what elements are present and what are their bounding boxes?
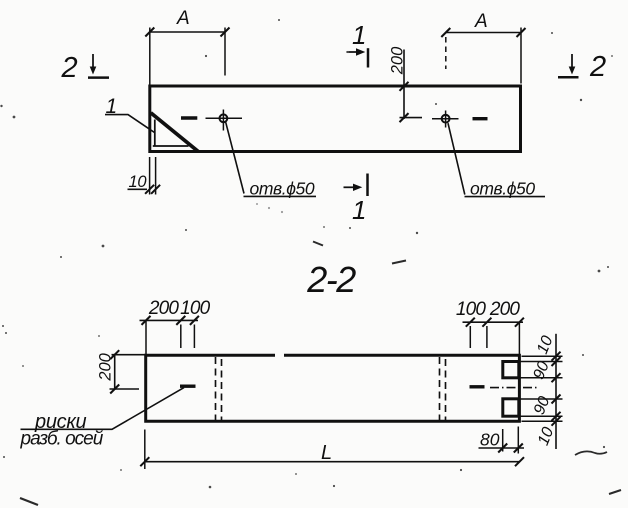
svg-text:разб. осей: разб. осей xyxy=(20,429,104,450)
svg-text:10: 10 xyxy=(129,173,148,191)
svg-text:200: 200 xyxy=(96,352,114,381)
svg-text:100: 100 xyxy=(456,299,487,320)
svg-text:2: 2 xyxy=(61,52,78,84)
svg-text:200: 200 xyxy=(389,46,407,75)
svg-text:отв.ϕ50: отв.ϕ50 xyxy=(250,178,315,198)
svg-text:1: 1 xyxy=(106,95,118,118)
svg-text:100: 100 xyxy=(180,298,211,319)
svg-text:A: A xyxy=(474,11,488,32)
svg-text:80: 80 xyxy=(480,430,500,450)
svg-text:200: 200 xyxy=(489,299,521,320)
svg-text:A: A xyxy=(176,8,190,29)
svg-text:2: 2 xyxy=(589,51,606,83)
svg-text:200: 200 xyxy=(148,298,180,319)
svg-text:1: 1 xyxy=(352,195,366,225)
svg-text:отв.ϕ50: отв.ϕ50 xyxy=(470,179,535,199)
svg-text:2-2: 2-2 xyxy=(306,259,356,300)
svg-text:1: 1 xyxy=(352,20,366,50)
svg-text:L: L xyxy=(321,442,332,464)
